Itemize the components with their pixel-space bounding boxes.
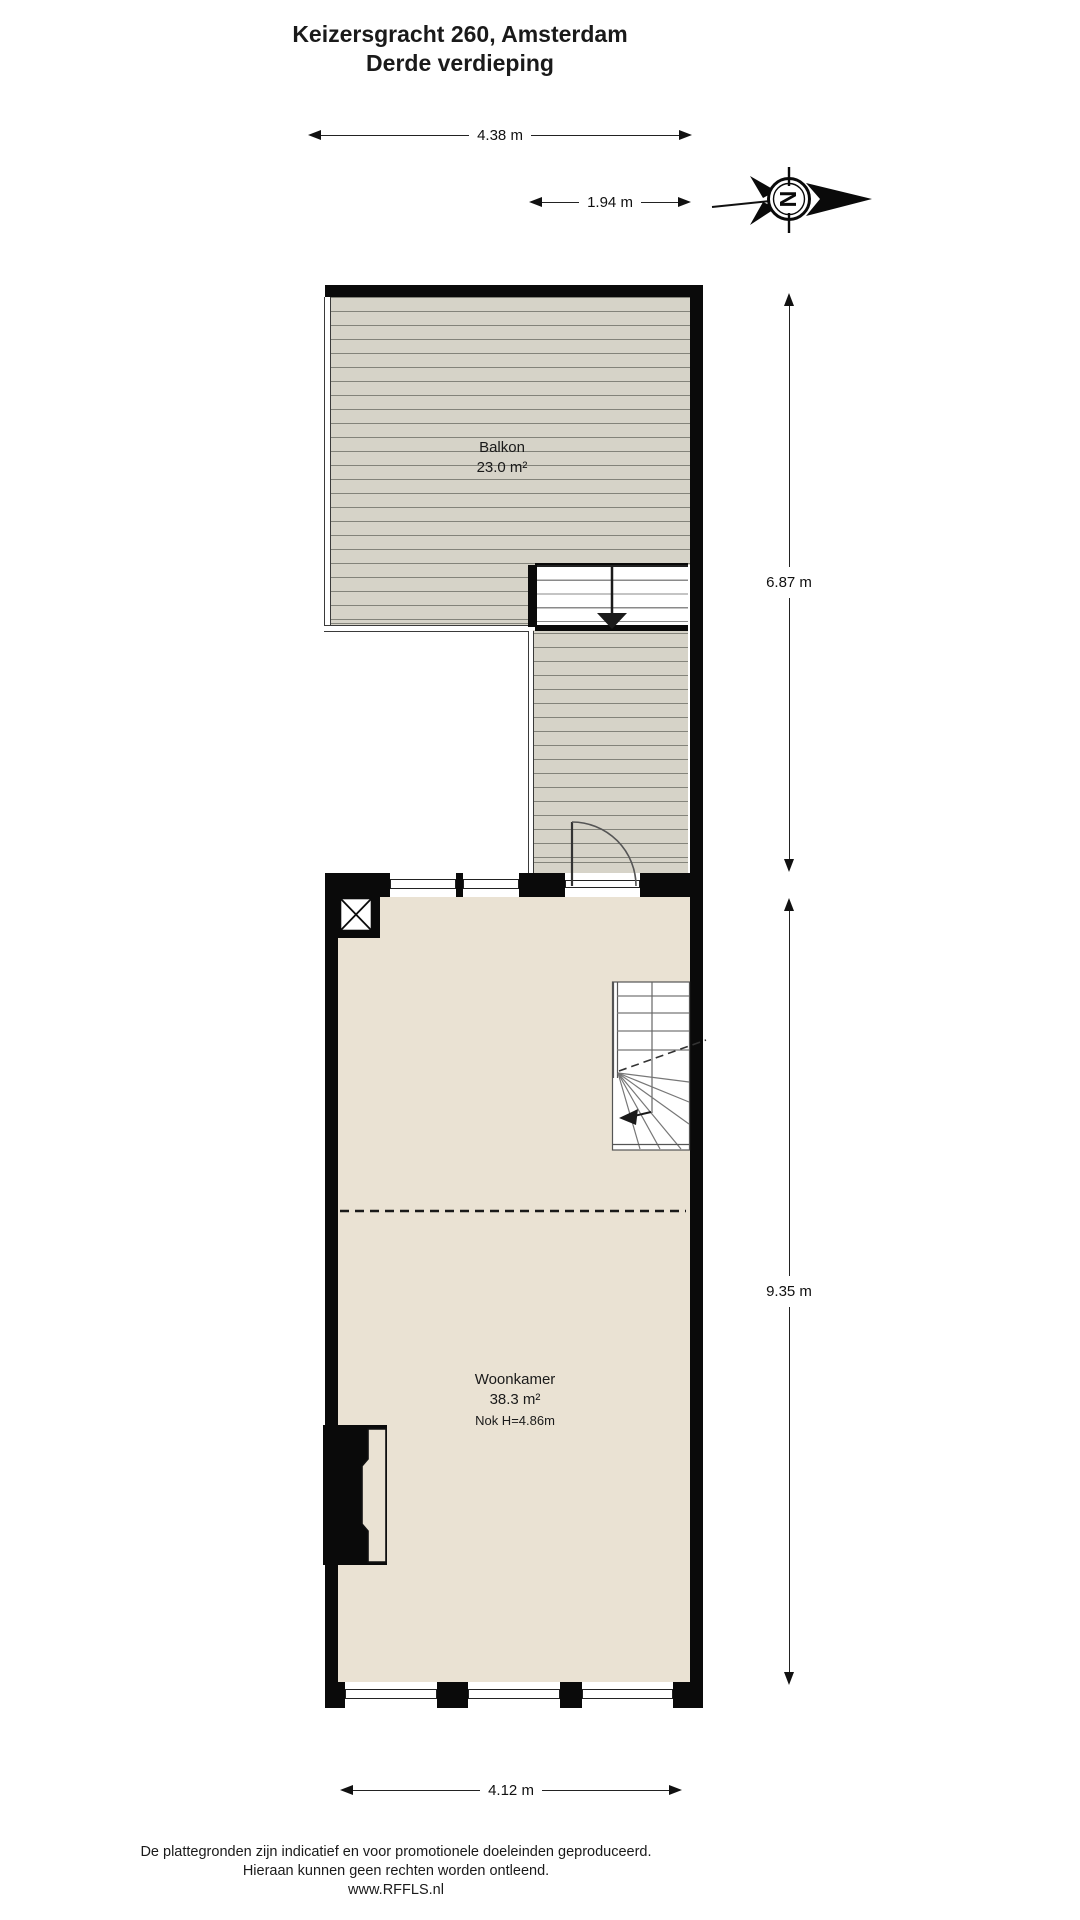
arrow-right-icon	[669, 1785, 682, 1795]
arrow-down-icon	[784, 859, 794, 872]
dim-label: 1.94 m	[579, 194, 641, 211]
footer-disclaimer: De plattegronden zijn indicatief en voor…	[96, 1843, 696, 1900]
room-area: 38.3 m²	[415, 1390, 615, 1410]
dim-line	[321, 135, 469, 136]
title-floor: Derde verdieping	[180, 49, 740, 78]
window-glass	[582, 1689, 673, 1699]
door-opening	[565, 873, 640, 897]
room-name: Woonkamer	[415, 1370, 615, 1390]
window-glass	[468, 1689, 560, 1699]
chimney-breast	[323, 1425, 387, 1565]
arrow-right-icon	[678, 197, 691, 207]
dim-line	[789, 306, 790, 567]
stair-side-wall	[528, 565, 537, 627]
dim-line	[542, 1790, 669, 1791]
room-ridge-height: Nok H=4.86m	[415, 1410, 615, 1430]
balcony-deck-lower-left	[330, 565, 528, 625]
footer-website: www.RFFLS.nl	[96, 1881, 696, 1900]
window	[468, 1682, 560, 1708]
window-glass	[390, 879, 456, 889]
dim-label: 6.87 m	[766, 567, 812, 598]
balcony-label: Balkon 23.0 m²	[402, 438, 602, 478]
dim-label: 9.35 m	[766, 1276, 812, 1307]
window	[582, 1682, 673, 1708]
balcony-deck	[330, 297, 690, 565]
room-name: Balkon	[402, 438, 602, 458]
dim-label: 4.12 m	[480, 1782, 542, 1799]
arrow-left-icon	[340, 1785, 353, 1795]
dim-line	[789, 598, 790, 859]
window	[463, 873, 519, 897]
shaft-block	[332, 890, 380, 938]
arrow-left-icon	[529, 197, 542, 207]
wall-top	[325, 285, 703, 297]
dim-line	[641, 202, 678, 203]
wall-right	[690, 285, 703, 1708]
stairs-down	[537, 565, 688, 625]
dimension-lower-height: 9.35 m	[761, 898, 817, 1685]
title-address: Keizersgracht 260, Amsterdam	[180, 20, 740, 49]
arrow-left-icon	[308, 130, 321, 140]
arrow-right-icon	[679, 130, 692, 140]
dim-line	[353, 1790, 480, 1791]
dimension-stairwell-width: 1.94 m	[529, 194, 691, 210]
balcony-railing-left	[324, 297, 331, 631]
window	[390, 873, 456, 897]
window-glass	[463, 879, 519, 889]
dim-line	[531, 135, 679, 136]
dim-label: 4.38 m	[469, 127, 531, 144]
door-threshold	[565, 880, 640, 888]
room-area: 23.0 m²	[402, 458, 602, 478]
balcony-railing-bottom	[324, 625, 533, 632]
floorplan-page: { "header": { "address": "Keizersgracht …	[0, 0, 1080, 1920]
window	[345, 1682, 437, 1708]
page-title: Keizersgracht 260, Amsterdam Derde verdi…	[180, 20, 740, 78]
living-room-label: Woonkamer 38.3 m² Nok H=4.86m	[415, 1370, 615, 1430]
dimension-living-width: 4.12 m	[340, 1782, 682, 1798]
dim-line	[789, 911, 790, 1276]
arrow-down-icon	[784, 1672, 794, 1685]
dim-line	[542, 202, 579, 203]
disclaimer-line-2: Hieraan kunnen geen rechten worden ontle…	[96, 1862, 696, 1881]
arrow-up-icon	[784, 293, 794, 306]
wall-left	[325, 897, 338, 1708]
dimension-balcony-width: 4.38 m	[308, 127, 692, 143]
compass-letter: N	[775, 191, 801, 208]
window-glass	[345, 1689, 437, 1699]
arrow-up-icon	[784, 898, 794, 911]
compass-icon: N	[712, 167, 872, 233]
stairwell-deck	[533, 630, 688, 873]
disclaimer-line-1: De plattegronden zijn indicatief en voor…	[96, 1843, 696, 1862]
stair-bottom-edge	[535, 625, 688, 631]
dimension-upper-height: 6.87 m	[761, 293, 817, 872]
living-room-floor	[338, 897, 690, 1682]
dim-line	[789, 1307, 790, 1672]
stairwell-railing	[528, 631, 534, 873]
